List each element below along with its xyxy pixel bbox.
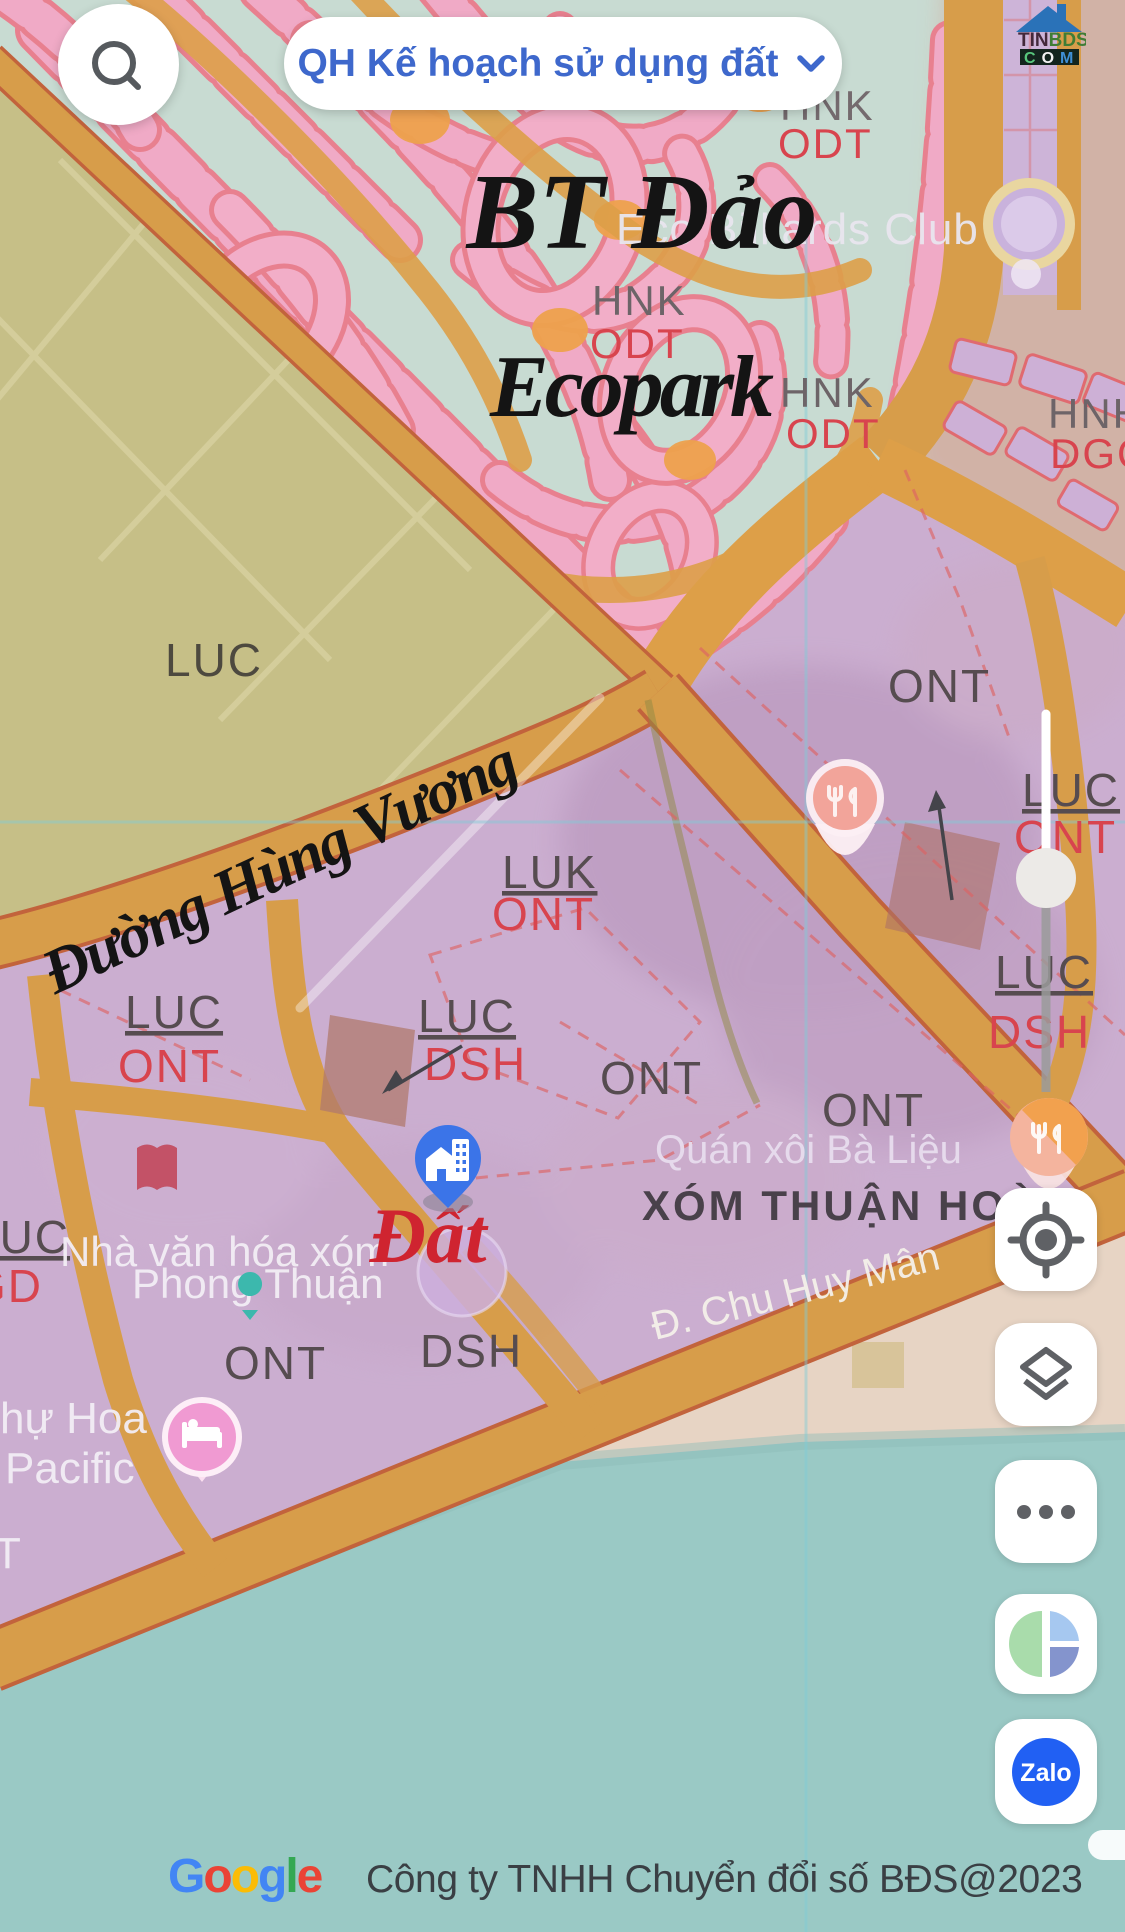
svg-text:ONT: ONT (492, 888, 595, 940)
svg-text:hự Hoa: hự Hoa (0, 1394, 147, 1443)
svg-text:ONT: ONT (224, 1337, 327, 1389)
svg-text:DSH: DSH (988, 1006, 1091, 1058)
svg-text:T: T (0, 1529, 21, 1578)
svg-text:Ecopark: Ecopark (489, 339, 774, 436)
svg-text:Zalo: Zalo (1020, 1759, 1071, 1787)
svg-text:ODT: ODT (786, 410, 881, 457)
svg-text:LUC: LUC (418, 990, 516, 1042)
svg-text:XÓM THUẬN HOÀ: XÓM THUẬN HOÀ (642, 1181, 1040, 1229)
svg-text:ONT: ONT (600, 1052, 703, 1104)
svg-text:HNK: HNK (592, 277, 687, 324)
svg-text:TINBDS: TINBDS (1018, 30, 1086, 51)
svg-text:ONT: ONT (118, 1040, 221, 1092)
svg-text:LUC: LUC (165, 634, 263, 686)
svg-text:Quán xôi Bà Liệu: Quán xôi Bà Liệu (655, 1128, 962, 1172)
svg-text:DGC: DGC (1050, 430, 1125, 477)
svg-text:Google: Google (168, 1850, 323, 1903)
svg-text:LUC: LUC (1022, 764, 1120, 816)
svg-text:COM: COM (1024, 50, 1079, 65)
svg-text:ONT: ONT (888, 660, 991, 712)
svg-text:GD: GD (0, 1260, 43, 1312)
svg-text:LUC: LUC (125, 986, 223, 1038)
svg-text:BT Đảo: BT Đảo (466, 153, 818, 272)
svg-text:DSH: DSH (420, 1325, 523, 1377)
svg-text:Pacific: Pacific (5, 1444, 135, 1493)
svg-text:DSH: DSH (424, 1038, 527, 1090)
svg-text:HNK: HNK (780, 369, 875, 416)
